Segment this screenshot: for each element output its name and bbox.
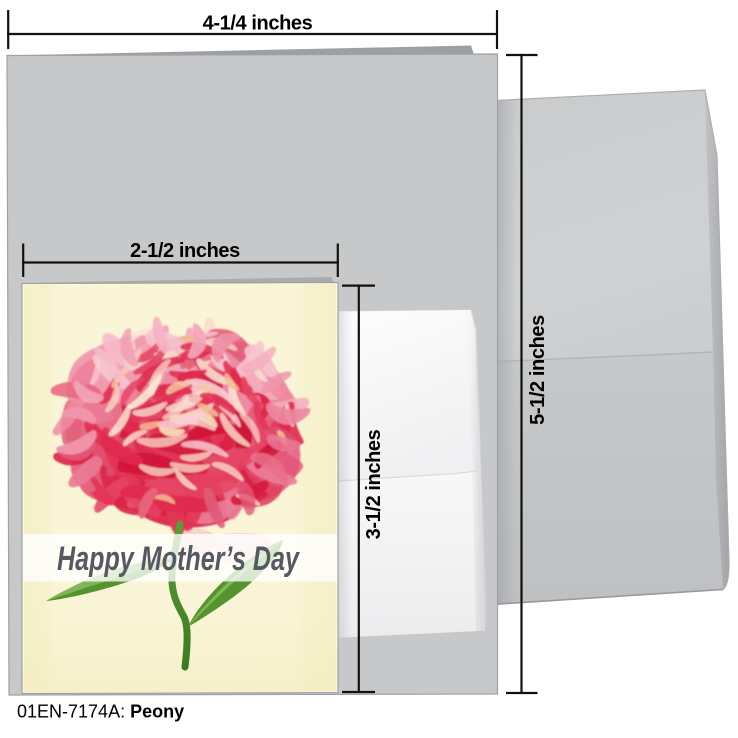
svg-text:5-1/2 inches: 5-1/2 inches xyxy=(527,315,549,425)
svg-text:3-1/2 inches: 3-1/2 inches xyxy=(363,429,385,539)
svg-text:01EN-7174A: Peony: 01EN-7174A: Peony xyxy=(17,701,184,721)
svg-text:2-1/2 inches: 2-1/2 inches xyxy=(130,240,240,262)
svg-text:4-1/4 inches: 4-1/4 inches xyxy=(203,13,313,35)
svg-text:Happy Mother’s Day: Happy Mother’s Day xyxy=(57,540,301,578)
